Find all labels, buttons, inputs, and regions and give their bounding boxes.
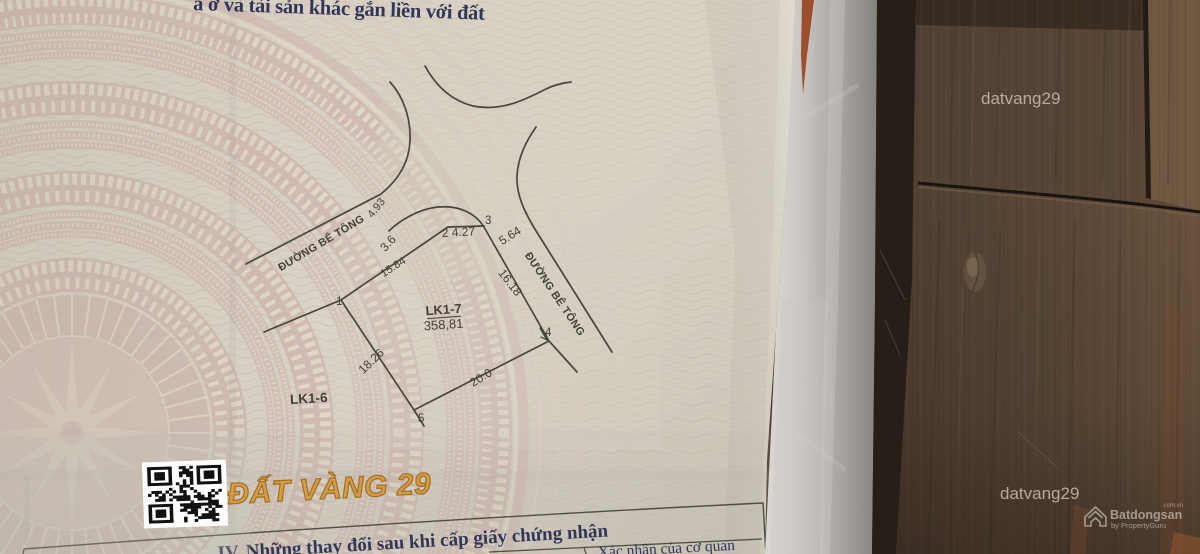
svg-text:datvang29: datvang29 [1000, 484, 1079, 503]
svg-text:datvang29: datvang29 [981, 89, 1060, 108]
svg-text:.com.vn: .com.vn [1162, 503, 1183, 509]
svg-text:by PropertyGuru: by PropertyGuru [1111, 521, 1166, 530]
svg-text:Batdongsan: Batdongsan [1110, 508, 1182, 522]
